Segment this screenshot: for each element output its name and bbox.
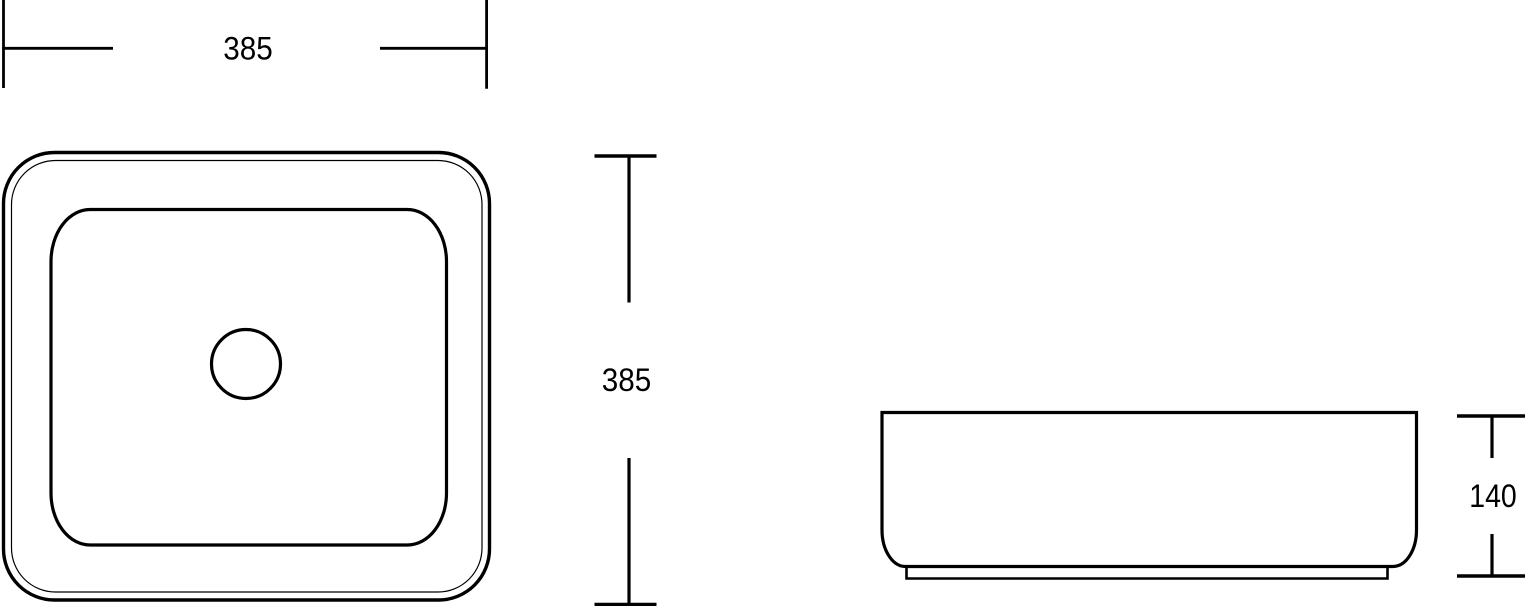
svg-text:385: 385 bbox=[223, 31, 273, 67]
svg-text:385: 385 bbox=[602, 362, 652, 398]
svg-text:140: 140 bbox=[1469, 478, 1517, 514]
